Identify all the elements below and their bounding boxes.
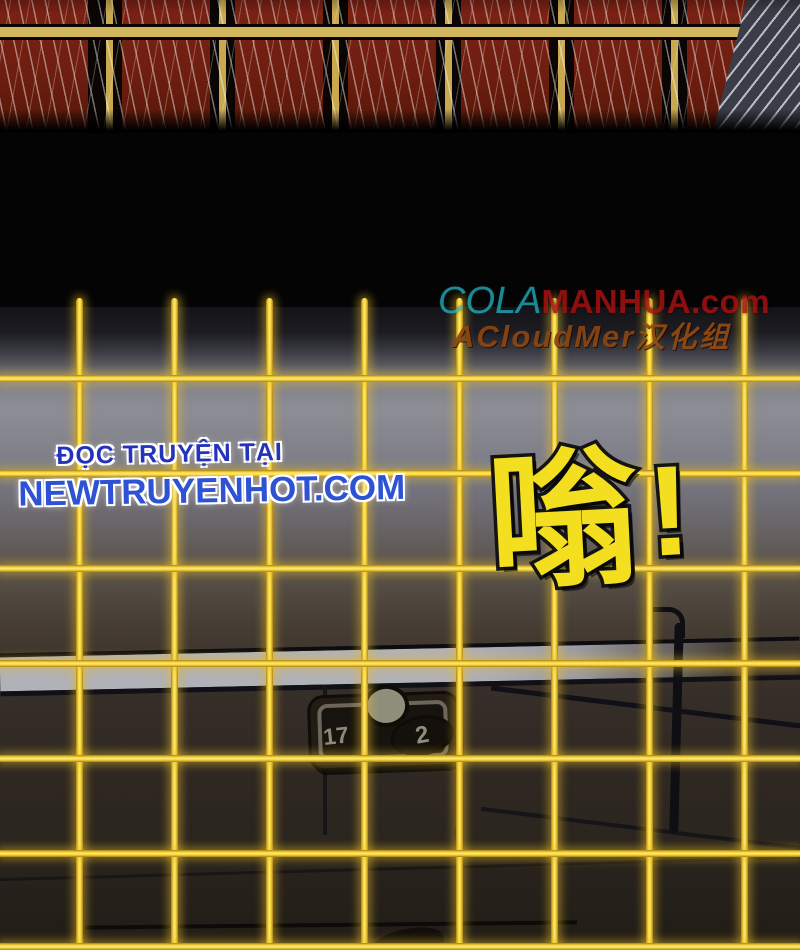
sfx-character: 嗡 xyxy=(484,433,643,609)
plaque-right-glyph: 2 xyxy=(413,721,431,751)
manga-page: 2 17 COLAMANHUA.c xyxy=(0,0,800,950)
drain-pipe-hook xyxy=(648,607,685,638)
sfx-buzz: 嗡! xyxy=(484,439,694,599)
wall-seam-line xyxy=(85,920,577,929)
grid-hline xyxy=(0,850,800,857)
reader-note-line1: ĐỌC TRUYỆN TẠI xyxy=(17,437,321,471)
panel-red-grid xyxy=(0,0,800,133)
grid-hline xyxy=(0,755,800,762)
grid-hline xyxy=(0,375,800,382)
watermark-reader-note: ĐỌC TRUYỆN TẠI NEWTRUYENHOT.COM xyxy=(17,437,322,514)
watermark-acloud-latin: ACloudMer xyxy=(452,319,635,354)
watermark-acloud-cjk: 汉化组 xyxy=(635,322,731,354)
grid-hline xyxy=(0,660,800,667)
grid-hline xyxy=(0,943,800,950)
wall-shadow-line xyxy=(0,856,800,881)
sfx-exclamation: ! xyxy=(644,439,694,584)
reader-note-line2: NEWTRUYENHOT.COM xyxy=(18,469,323,514)
watermark-site-mid: ACloudMer汉化组 xyxy=(452,314,731,356)
panel-bottom-fade xyxy=(0,0,800,133)
roof-diagonal-line-2 xyxy=(481,807,800,851)
plaque-left-glyphs: 17 xyxy=(322,721,350,751)
